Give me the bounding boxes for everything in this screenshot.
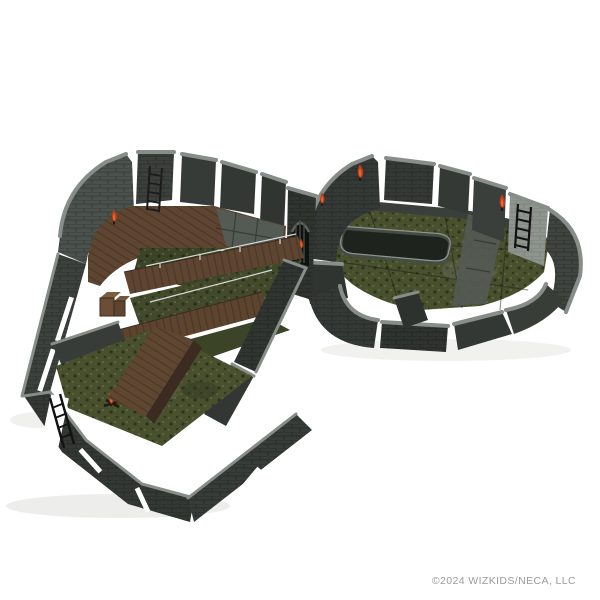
- copyright-text: ©2024 WIZKIDS/NECA, LLC: [432, 575, 576, 587]
- product-photo: ©2024 WIZKIDS/NECA, LLC: [0, 0, 600, 600]
- wall-segment: [180, 154, 216, 206]
- wooden-crates: [100, 292, 130, 316]
- moss-patch: [182, 381, 218, 399]
- dungeon-terrain-illustration: ©2024 WIZKIDS/NECA, LLC: [0, 0, 600, 600]
- texture: [136, 152, 174, 204]
- texture: [188, 414, 312, 522]
- right-room: [304, 156, 581, 352]
